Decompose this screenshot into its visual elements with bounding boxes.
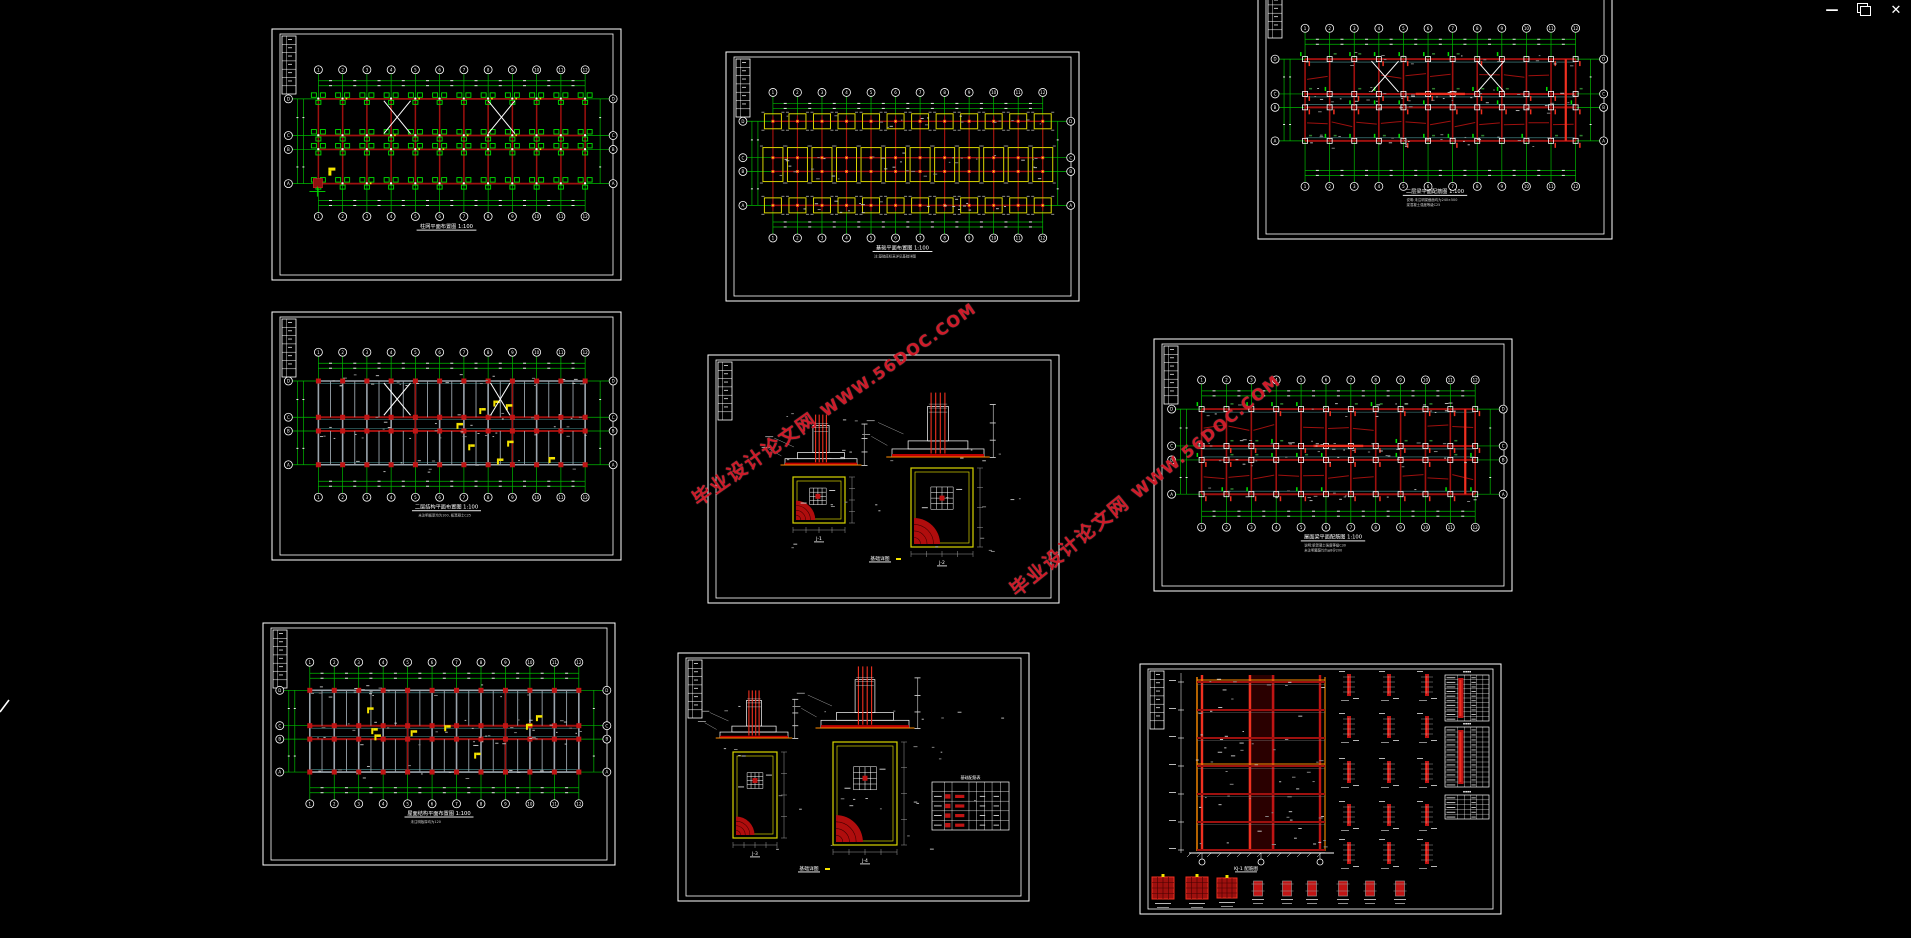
svg-text:2: 2 <box>1225 378 1228 383</box>
svg-text:二层梁平面配筋图 1:100: 二层梁平面配筋图 1:100 <box>1406 187 1464 195</box>
svg-text:10: 10 <box>1524 26 1530 31</box>
svg-text:4: 4 <box>382 660 385 665</box>
sheet-mid-middle[interactable]: J-1J-2基础详图 <box>707 354 1060 604</box>
sheet-drawing: J-3J-4基础配筋表基础详图 <box>677 652 1030 902</box>
svg-text:12: 12 <box>1573 26 1579 31</box>
svg-text:11: 11 <box>1016 236 1022 241</box>
svg-text:2: 2 <box>341 350 344 355</box>
svg-text:9: 9 <box>504 801 507 806</box>
svg-text:B: B <box>1069 169 1072 174</box>
svg-text:5: 5 <box>414 67 417 72</box>
svg-text:B: B <box>287 429 290 434</box>
svg-text:未注明板厚均为100, 板混凝土C25: 未注明板厚均为100, 板混凝土C25 <box>418 513 471 518</box>
svg-text:10: 10 <box>991 236 997 241</box>
svg-text:9: 9 <box>968 236 971 241</box>
svg-text:A: A <box>612 181 615 186</box>
svg-text:▪▪▪▪: ▪▪▪▪ <box>1463 722 1471 726</box>
svg-text:7: 7 <box>455 801 458 806</box>
svg-text:11: 11 <box>558 350 564 355</box>
svg-text:9: 9 <box>1501 184 1504 189</box>
svg-text:10: 10 <box>1423 525 1429 530</box>
svg-text:C: C <box>612 133 615 138</box>
svg-text:12: 12 <box>1573 184 1579 189</box>
svg-text:3: 3 <box>357 801 360 806</box>
svg-text:7: 7 <box>1350 525 1353 530</box>
svg-text:A: A <box>1170 492 1173 497</box>
svg-text:5: 5 <box>406 660 409 665</box>
window-controls: — ✕ <box>1823 2 1905 18</box>
svg-text:2: 2 <box>341 495 344 500</box>
svg-text:8: 8 <box>480 801 483 806</box>
svg-text:说明:梁混凝土强度等级C30: 说明:梁混凝土强度等级C30 <box>1304 543 1346 548</box>
svg-text:1: 1 <box>1304 26 1307 31</box>
svg-text:7: 7 <box>463 67 466 72</box>
svg-text:B: B <box>1170 458 1173 463</box>
svg-text:1: 1 <box>772 90 775 95</box>
stray-cursor-artifact <box>0 698 12 714</box>
svg-text:10: 10 <box>1524 184 1530 189</box>
svg-text:6: 6 <box>431 801 434 806</box>
svg-text:9: 9 <box>968 90 971 95</box>
svg-text:11: 11 <box>1548 26 1554 31</box>
svg-text:12: 12 <box>1473 378 1479 383</box>
svg-text:9: 9 <box>511 350 514 355</box>
svg-text:9: 9 <box>1399 525 1402 530</box>
svg-text:说明:未注明梁截面均为240×500: 说明:未注明梁截面均为240×500 <box>1407 197 1458 202</box>
svg-text:12: 12 <box>583 67 589 72</box>
svg-text:D: D <box>278 688 281 693</box>
sheet-drawing: DDCCBBAA112233445566778899101011111212二层… <box>271 311 622 561</box>
close-button[interactable]: ✕ <box>1887 2 1905 18</box>
restore-window-icon <box>1860 6 1871 16</box>
svg-text:5: 5 <box>870 236 873 241</box>
svg-text:柱网平面布置图 1:100: 柱网平面布置图 1:100 <box>420 222 473 230</box>
svg-text:▪▪▪▪: ▪▪▪▪ <box>1463 670 1471 674</box>
svg-text:10: 10 <box>991 90 997 95</box>
svg-text:D: D <box>1274 57 1277 62</box>
sheet-mid-left[interactable]: DDCCBBAA112233445566778899101011111212二层… <box>271 311 622 561</box>
svg-text:C: C <box>287 133 290 138</box>
svg-text:9: 9 <box>1501 26 1504 31</box>
svg-text:4: 4 <box>382 801 385 806</box>
svg-text:10: 10 <box>527 801 533 806</box>
svg-text:3: 3 <box>357 660 360 665</box>
svg-text:7: 7 <box>1451 26 1454 31</box>
svg-text:3: 3 <box>1250 525 1253 530</box>
sheet-bottom-left[interactable]: DDCCBBAA112233445566778899101011111212屋面… <box>262 622 616 866</box>
svg-text:7: 7 <box>919 236 922 241</box>
svg-text:D: D <box>1069 119 1072 124</box>
svg-text:2: 2 <box>796 90 799 95</box>
svg-text:梁混凝土强度等级C25: 梁混凝土强度等级C25 <box>1407 202 1441 207</box>
svg-text:D: D <box>287 96 290 101</box>
svg-text:7: 7 <box>463 495 466 500</box>
svg-text:C: C <box>287 415 290 420</box>
svg-text:A: A <box>1274 138 1277 143</box>
svg-text:1: 1 <box>309 801 312 806</box>
svg-text:12: 12 <box>1473 525 1479 530</box>
svg-text:5: 5 <box>870 90 873 95</box>
svg-text:10: 10 <box>534 67 540 72</box>
sheet-drawing: KJ-1 配筋图▪▪▪▪▪▪▪▪▪▪▪▪ <box>1139 663 1502 915</box>
svg-text:5: 5 <box>1300 525 1303 530</box>
svg-text:6: 6 <box>431 660 434 665</box>
svg-text:1: 1 <box>309 660 312 665</box>
svg-text:10: 10 <box>1423 378 1429 383</box>
svg-text:8: 8 <box>480 660 483 665</box>
svg-text:C: C <box>1274 92 1277 97</box>
svg-text:2: 2 <box>1328 26 1331 31</box>
svg-text:10: 10 <box>534 214 540 219</box>
svg-text:A: A <box>287 181 290 186</box>
svg-text:D: D <box>287 379 290 384</box>
svg-text:A: A <box>612 462 615 467</box>
svg-text:A: A <box>1602 138 1605 143</box>
svg-text:10: 10 <box>527 660 533 665</box>
svg-text:4: 4 <box>390 350 393 355</box>
svg-text:1: 1 <box>1304 184 1307 189</box>
svg-text:1: 1 <box>317 495 320 500</box>
sheet-top-right[interactable]: DDCCBBAA112233445566778899101011111212二层… <box>1257 0 1613 240</box>
svg-text:4: 4 <box>390 214 393 219</box>
svg-text:A: A <box>278 770 281 775</box>
svg-text:4: 4 <box>1275 525 1278 530</box>
svg-text:5: 5 <box>1300 378 1303 383</box>
svg-text:11: 11 <box>1448 378 1454 383</box>
svg-text:6: 6 <box>438 214 441 219</box>
svg-text:▪▪▪▪: ▪▪▪▪ <box>1463 790 1471 794</box>
svg-text:B: B <box>1602 105 1605 110</box>
svg-text:5: 5 <box>1402 26 1405 31</box>
svg-text:5: 5 <box>414 495 417 500</box>
cad-canvas[interactable]: — ✕ DDCCBBAA1122334455667788991010111112… <box>0 0 1911 938</box>
svg-text:C: C <box>605 723 608 728</box>
sheet-top-middle[interactable]: DDCCBBAA112233445566778899101011111212基础… <box>725 51 1080 302</box>
svg-text:9: 9 <box>1399 378 1402 383</box>
svg-text:7: 7 <box>463 350 466 355</box>
svg-text:5: 5 <box>414 214 417 219</box>
svg-text:9: 9 <box>511 67 514 72</box>
svg-text:2: 2 <box>341 67 344 72</box>
svg-text:11: 11 <box>558 214 564 219</box>
svg-text:11: 11 <box>558 495 564 500</box>
svg-text:A: A <box>605 770 608 775</box>
svg-text:3: 3 <box>366 67 369 72</box>
svg-text:1: 1 <box>772 236 775 241</box>
svg-text:11: 11 <box>1548 184 1554 189</box>
sheet-top-left[interactable]: DDCCBBAA112233445566778899101011111212柱网… <box>271 28 622 281</box>
svg-text:B: B <box>278 737 281 742</box>
sheet-bottom-right[interactable]: KJ-1 配筋图▪▪▪▪▪▪▪▪▪▪▪▪ <box>1139 663 1502 915</box>
svg-text:C: C <box>1069 155 1072 160</box>
svg-text:C: C <box>1602 92 1605 97</box>
svg-text:B: B <box>605 737 608 742</box>
svg-text:2: 2 <box>1328 184 1331 189</box>
svg-text:5: 5 <box>1402 184 1405 189</box>
svg-text:C: C <box>742 155 745 160</box>
sheet-drawing: DDCCBBAA112233445566778899101011111212二层… <box>1257 0 1613 240</box>
svg-text:2: 2 <box>333 660 336 665</box>
svg-text:1: 1 <box>317 214 320 219</box>
sheet-bottom-middle[interactable]: J-3J-4基础配筋表基础详图 <box>677 652 1030 902</box>
svg-text:B: B <box>612 147 615 152</box>
svg-text:屋面结构平面布置图 1:100: 屋面结构平面布置图 1:100 <box>407 809 470 817</box>
sheet-drawing: DDCCBBAA112233445566778899101011111212柱网… <box>271 28 622 281</box>
sheet-drawing: DDCCBBAA112233445566778899101011111212屋面… <box>262 622 616 866</box>
svg-text:8: 8 <box>1476 184 1479 189</box>
svg-text:J-2: J-2 <box>938 560 945 566</box>
svg-text:12: 12 <box>576 660 582 665</box>
svg-text:J-4: J-4 <box>861 858 868 864</box>
svg-text:12: 12 <box>1040 90 1046 95</box>
svg-text:7: 7 <box>919 90 922 95</box>
svg-text:B: B <box>742 169 745 174</box>
sheet-drawing: DDCCBBAA112233445566778899101011111212屋面… <box>1153 338 1513 592</box>
svg-text:基础详图: 基础详图 <box>799 865 818 872</box>
svg-text:C: C <box>278 723 281 728</box>
svg-text:8: 8 <box>487 350 490 355</box>
svg-text:D: D <box>1502 407 1505 412</box>
svg-text:11: 11 <box>558 67 564 72</box>
sheet-drawing: J-1J-2基础详图 <box>707 354 1060 604</box>
svg-text:C: C <box>612 415 615 420</box>
svg-text:基础详图: 基础详图 <box>870 555 889 562</box>
svg-text:6: 6 <box>894 236 897 241</box>
svg-text:12: 12 <box>583 214 589 219</box>
minimize-button[interactable]: — <box>1823 2 1841 18</box>
svg-text:B: B <box>612 429 615 434</box>
svg-text:11: 11 <box>1448 525 1454 530</box>
svg-text:3: 3 <box>366 495 369 500</box>
svg-text:D: D <box>1170 407 1173 412</box>
svg-text:7: 7 <box>1350 378 1353 383</box>
svg-text:6: 6 <box>438 67 441 72</box>
svg-text:KJ-1 配筋图: KJ-1 配筋图 <box>1234 865 1258 872</box>
svg-text:C: C <box>1502 444 1505 449</box>
svg-text:9: 9 <box>511 214 514 219</box>
svg-text:11: 11 <box>1016 90 1022 95</box>
svg-text:6: 6 <box>1325 525 1328 530</box>
svg-text:5: 5 <box>406 801 409 806</box>
svg-text:12: 12 <box>583 350 589 355</box>
svg-text:B: B <box>287 147 290 152</box>
svg-text:6: 6 <box>438 350 441 355</box>
svg-text:2: 2 <box>1225 525 1228 530</box>
svg-text:D: D <box>1602 57 1605 62</box>
svg-text:未注明箍筋均为φ8@200: 未注明箍筋均为φ8@200 <box>1304 547 1342 552</box>
svg-text:12: 12 <box>583 495 589 500</box>
svg-text:3: 3 <box>821 90 824 95</box>
svg-text:8: 8 <box>487 495 490 500</box>
svg-text:4: 4 <box>390 495 393 500</box>
svg-text:3: 3 <box>1353 26 1356 31</box>
svg-text:5: 5 <box>414 350 417 355</box>
svg-text:A: A <box>742 203 745 208</box>
svg-text:6: 6 <box>1427 26 1430 31</box>
svg-text:屋面梁平面配筋图 1:100: 屋面梁平面配筋图 1:100 <box>1304 533 1362 541</box>
svg-text:C: C <box>1170 444 1173 449</box>
svg-text:12: 12 <box>1040 236 1046 241</box>
svg-text:6: 6 <box>438 495 441 500</box>
svg-text:基础配筋表: 基础配筋表 <box>961 774 981 780</box>
svg-text:1: 1 <box>317 67 320 72</box>
svg-text:未注明板厚均为120: 未注明板厚均为120 <box>411 819 441 824</box>
svg-text:3: 3 <box>366 214 369 219</box>
svg-text:11: 11 <box>552 660 558 665</box>
svg-text:A: A <box>1502 492 1505 497</box>
svg-text:8: 8 <box>487 214 490 219</box>
svg-text:9: 9 <box>511 495 514 500</box>
svg-text:注:基础底标高详见基础详图: 注:基础底标高详见基础详图 <box>874 253 916 258</box>
svg-text:A: A <box>1069 203 1072 208</box>
svg-text:3: 3 <box>366 350 369 355</box>
svg-text:2: 2 <box>341 214 344 219</box>
svg-text:D: D <box>741 119 744 124</box>
svg-text:4: 4 <box>1275 378 1278 383</box>
svg-text:J-1: J-1 <box>815 536 822 542</box>
sheet-drawing: DDCCBBAA112233445566778899101011111212基础… <box>725 51 1080 302</box>
restore-window-button[interactable] <box>1855 2 1873 18</box>
svg-text:D: D <box>612 379 615 384</box>
svg-text:6: 6 <box>1325 378 1328 383</box>
svg-text:11: 11 <box>552 801 558 806</box>
svg-text:1: 1 <box>317 350 320 355</box>
svg-text:D: D <box>605 688 608 693</box>
svg-text:7: 7 <box>455 660 458 665</box>
svg-text:B: B <box>1274 105 1277 110</box>
svg-text:J-3: J-3 <box>751 851 758 857</box>
svg-text:10: 10 <box>534 495 540 500</box>
svg-text:7: 7 <box>463 214 466 219</box>
sheet-mid-right[interactable]: DDCCBBAA112233445566778899101011111212屋面… <box>1153 338 1513 592</box>
svg-text:二层结构平面布置图 1:100: 二层结构平面布置图 1:100 <box>415 503 478 511</box>
svg-text:10: 10 <box>534 350 540 355</box>
svg-text:3: 3 <box>1250 378 1253 383</box>
svg-text:A: A <box>287 462 290 467</box>
svg-text:3: 3 <box>821 236 824 241</box>
svg-text:2: 2 <box>796 236 799 241</box>
svg-text:3: 3 <box>1353 184 1356 189</box>
svg-text:B: B <box>1502 458 1505 463</box>
svg-text:9: 9 <box>504 660 507 665</box>
svg-text:8: 8 <box>1476 26 1479 31</box>
svg-text:4: 4 <box>390 67 393 72</box>
svg-text:8: 8 <box>487 67 490 72</box>
svg-text:12: 12 <box>576 801 582 806</box>
svg-text:6: 6 <box>894 90 897 95</box>
svg-text:基础平面布置图 1:100: 基础平面布置图 1:100 <box>876 243 929 251</box>
svg-text:D: D <box>612 96 615 101</box>
svg-text:2: 2 <box>333 801 336 806</box>
